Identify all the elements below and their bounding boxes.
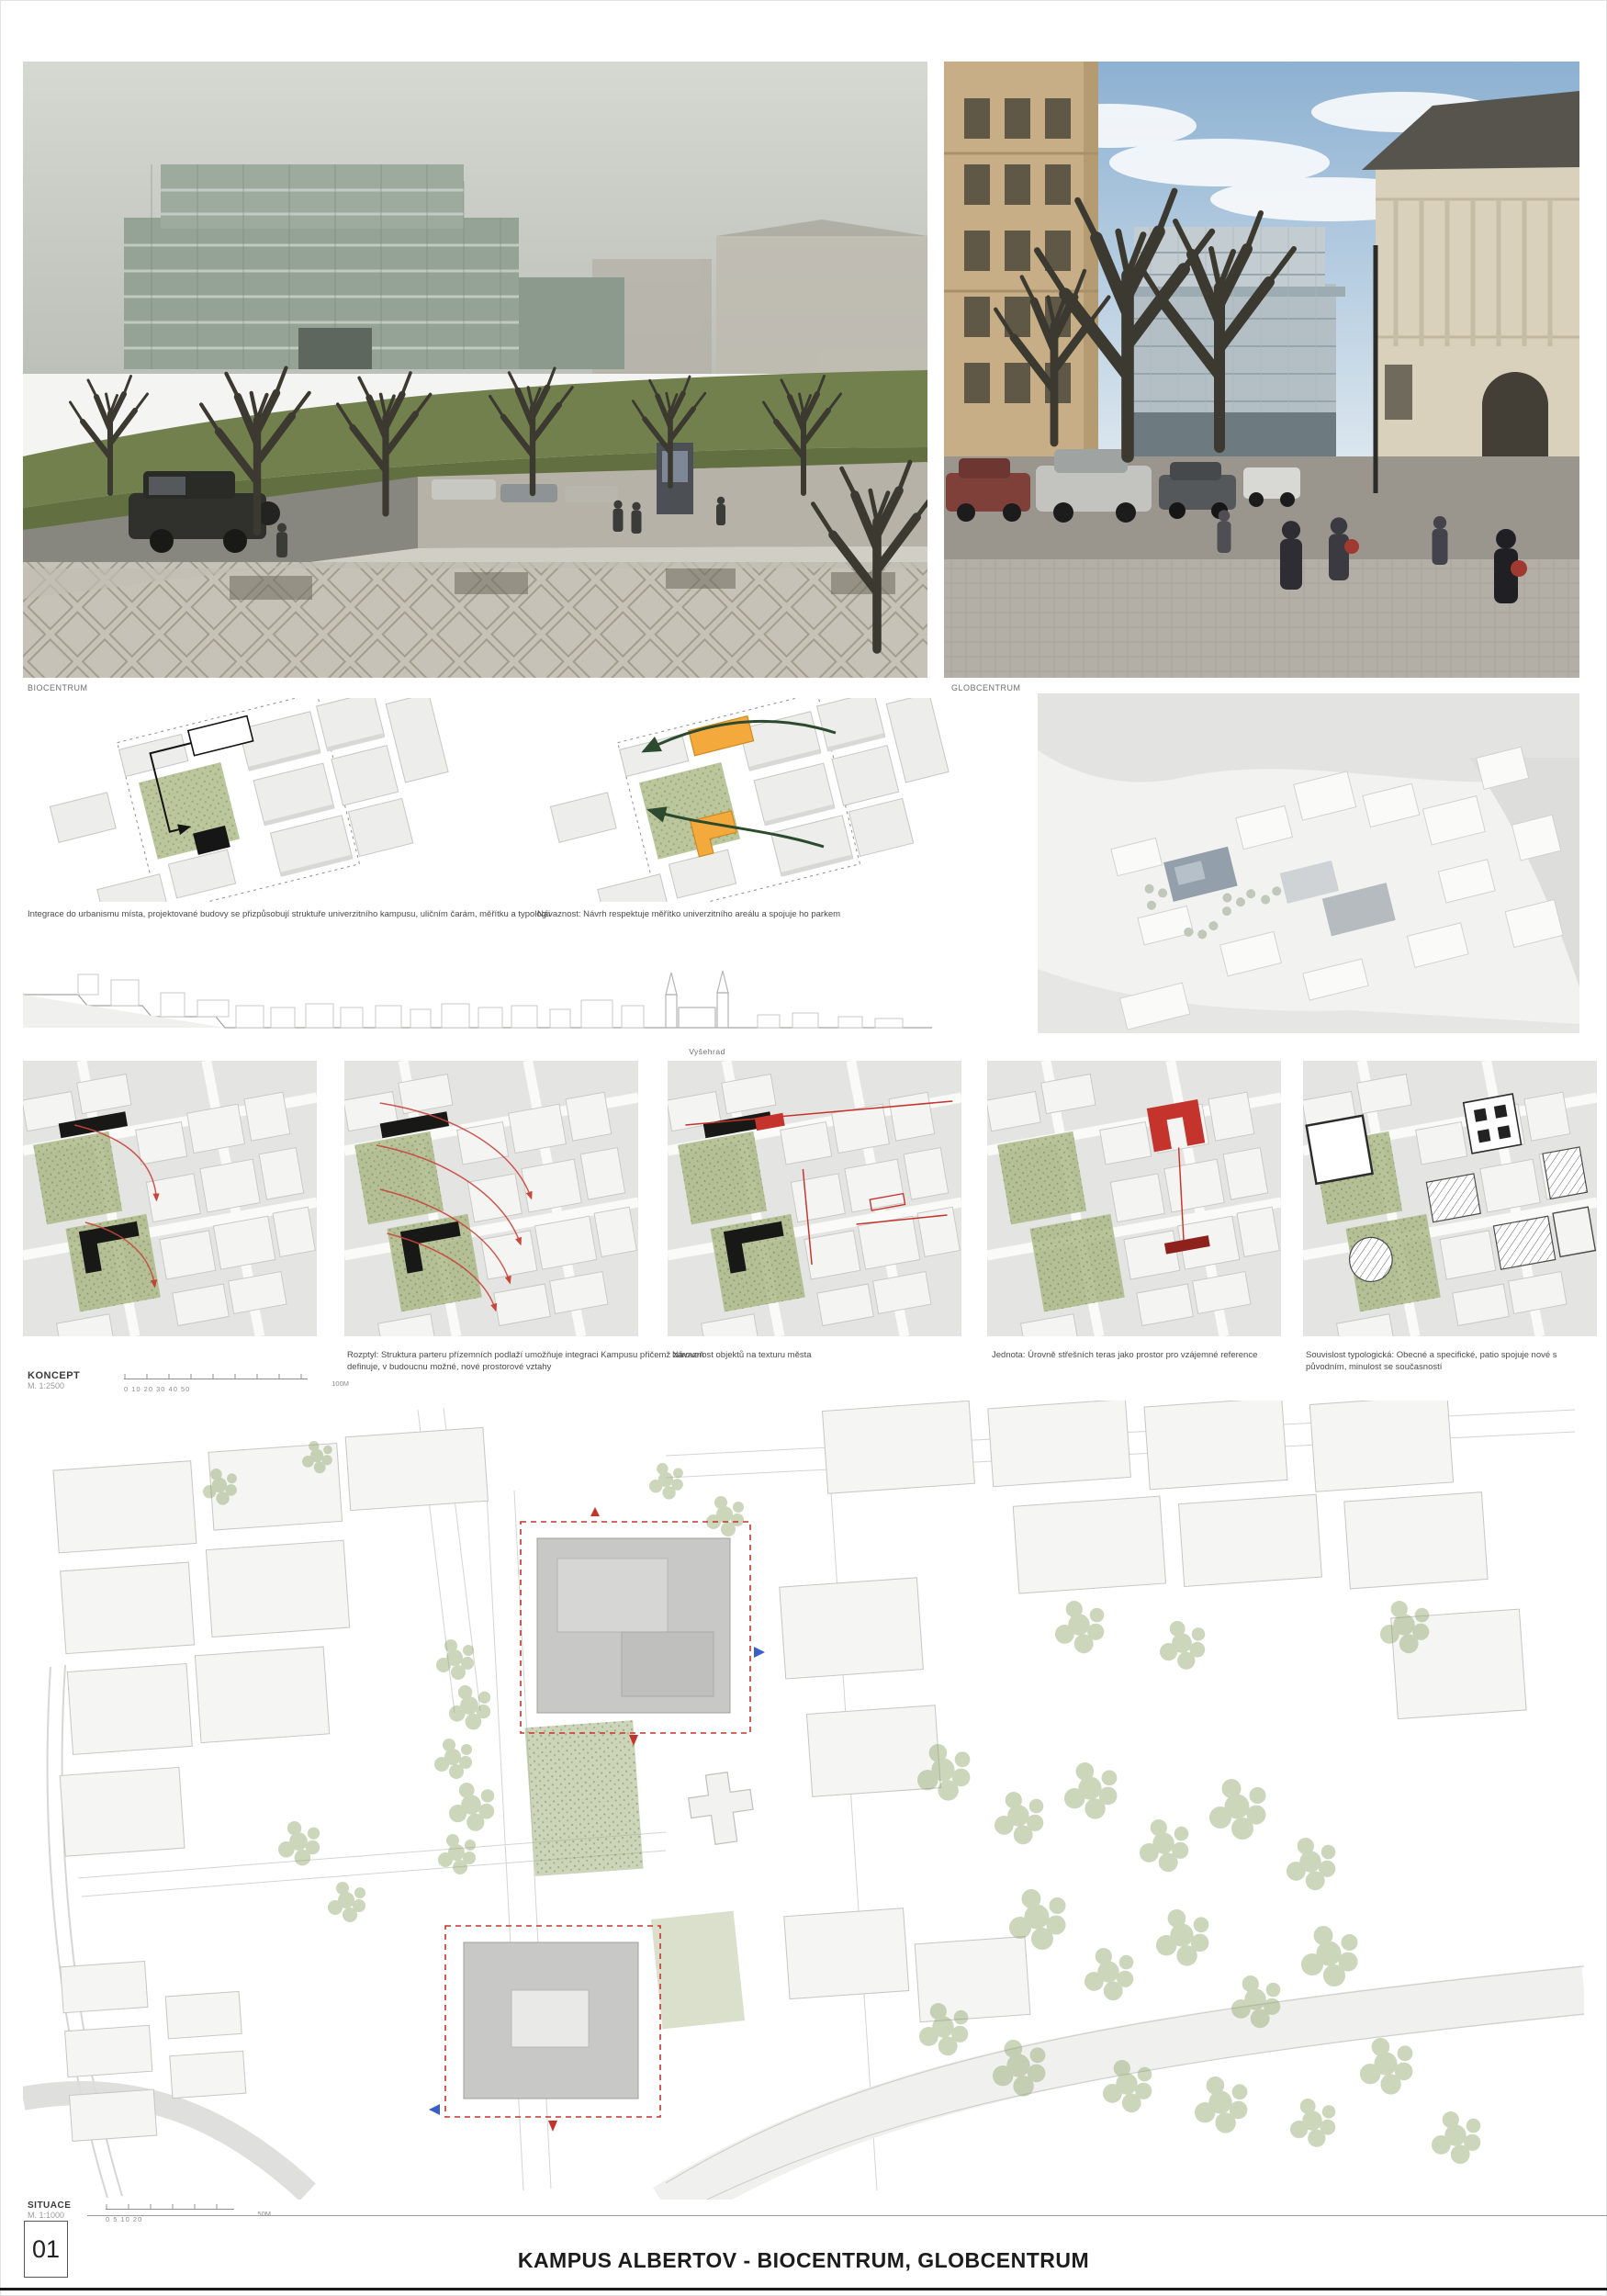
board-title: KAMPUS ALBERTOV - BIOCENTRUM, GLOBCENTRU… [0,2248,1607,2273]
biocentrum-label: BIOCENTRUM [28,683,88,692]
axon-diagram-navaznost [528,698,1015,902]
koncept-caption-3: Návaznost objektů na texturu města [672,1350,966,1362]
site-plan [23,1401,1584,2200]
koncept-scale: M. 1:2500 [28,1381,138,1390]
koncept-scale-block: KONCEPT M. 1:2500 [28,1370,138,1390]
koncept-diagram-2 [344,1061,638,1336]
biocentrum-render-art [23,62,927,678]
classical-building [1362,91,1579,495]
ochre-building [944,62,1098,470]
vysehrad-church-outline [666,971,728,1028]
biocentrum-render [23,62,927,678]
bottom-rule [0,2288,1607,2290]
koncept-3-art [668,1061,961,1336]
competition-board: BIOCENTRUM [0,0,1607,2296]
koncept-1-art [23,1061,317,1336]
koncept-diagram-3 [668,1061,961,1336]
axon-integration-art [28,698,514,902]
footer-rule [87,2215,1607,2216]
koncept-scalebar-end: 100M [332,1379,349,1388]
koncept-title: KONCEPT [28,1370,138,1381]
koncept-diagram-1 [23,1061,317,1336]
section-label: Vyšehrad [634,1047,781,1056]
koncept-4-art [987,1061,1281,1336]
globcentrum-render-art [944,62,1579,678]
koncept-5-art [1303,1061,1597,1336]
city-section-drawing [23,941,932,1044]
koncept-scalebar-graphic [124,1374,308,1379]
axon-caption-right: Návaznost: Návrh respektuje měřítko univ… [537,909,1015,921]
koncept-diagram-5 [1303,1061,1597,1336]
site-plan-art [23,1401,1584,2200]
section-art [23,941,932,1044]
situace-scalebar-ticks: 0 5 10 20 [106,2215,142,2223]
koncept-caption-5: Souvislost typologická: Obecné a specifi… [1306,1350,1590,1374]
koncept-scalebar-ticks: 0 10 20 30 40 50 [124,1385,190,1393]
situace-scalebar-graphic [106,2204,234,2210]
axon-navaznost-art [528,698,1015,902]
globcentrum-label: GLOBCENTRUM [951,683,1021,692]
koncept-caption-4: Jednota: Úrovně střešních teras jako pro… [992,1350,1322,1362]
koncept-scalebar: 0 10 20 30 40 50 100M [124,1374,308,1396]
situace-scalebar-end: 50M [257,2210,271,2218]
globcentrum-render [944,62,1579,678]
physical-model-photo [1038,693,1579,1033]
model-art [1038,693,1579,1033]
koncept-2-art [344,1061,638,1336]
kiosk [657,443,693,514]
koncept-diagram-4 [987,1061,1281,1336]
biocentrum-footprint [521,1507,765,1746]
axon-diagram-integration [28,698,514,902]
